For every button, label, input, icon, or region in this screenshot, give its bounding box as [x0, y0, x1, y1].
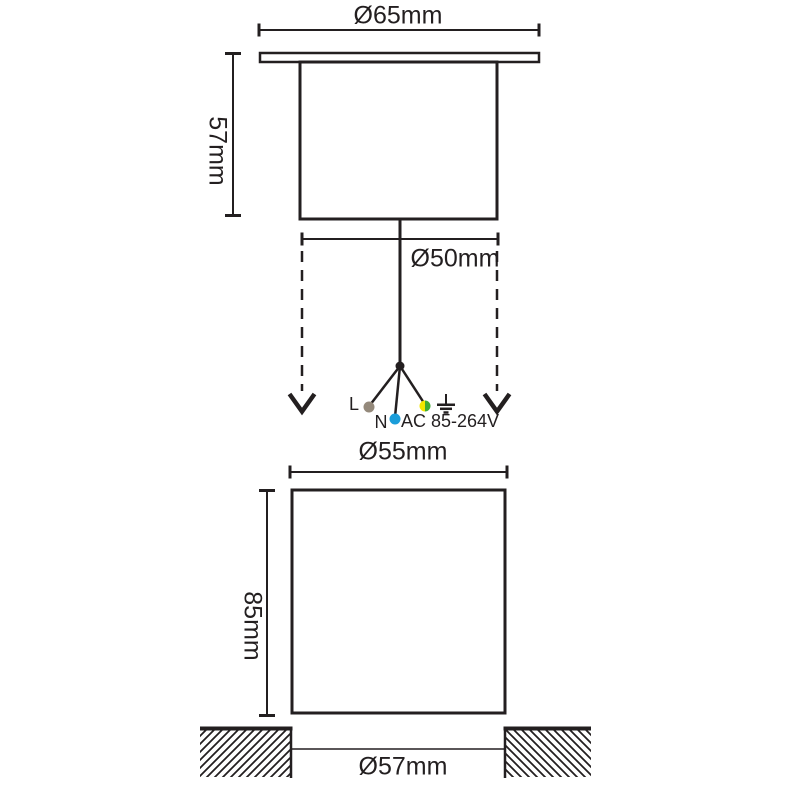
live-wire-label: L [349, 395, 359, 413]
sleeve-diameter-label: Ø55mm [359, 440, 448, 465]
earth-ground-icon [437, 394, 455, 413]
sleeve-height-label: 85mm [240, 591, 265, 660]
ground-section-right [504, 727, 592, 778]
flange-diameter-label: Ø65mm [354, 4, 443, 29]
dashed-arrow-left [290, 251, 315, 412]
cable-junction-dot [396, 362, 405, 371]
inground-light-dimension-drawing: Ø65mm 57mm Ø50mm L N AC 85-264V Ø55mm 85… [0, 0, 800, 800]
dashed-arrow-right [485, 251, 510, 412]
earth-wire-line [400, 366, 424, 403]
body-diameter-label: Ø50mm [411, 247, 500, 272]
earth-wire-dot-green-half [425, 401, 431, 412]
neutral-wire-label: N [375, 413, 388, 431]
neutral-wire-dot [390, 414, 401, 425]
ground-section-left [200, 727, 293, 778]
voltage-rating-label: AC 85-264V [401, 412, 499, 430]
cutout-diameter-label: Ø57mm [359, 755, 448, 780]
sleeve-diameter-dimension-line [290, 466, 507, 479]
earth-wire-dot-yellow-half [420, 401, 426, 412]
mounting-sleeve-outline [292, 490, 505, 713]
neutral-wire-line [395, 366, 400, 417]
fixture-height-label: 57mm [205, 116, 230, 185]
fixture-body-outline [300, 62, 497, 219]
live-wire-dot [364, 402, 375, 413]
drawing-linework [0, 0, 800, 800]
